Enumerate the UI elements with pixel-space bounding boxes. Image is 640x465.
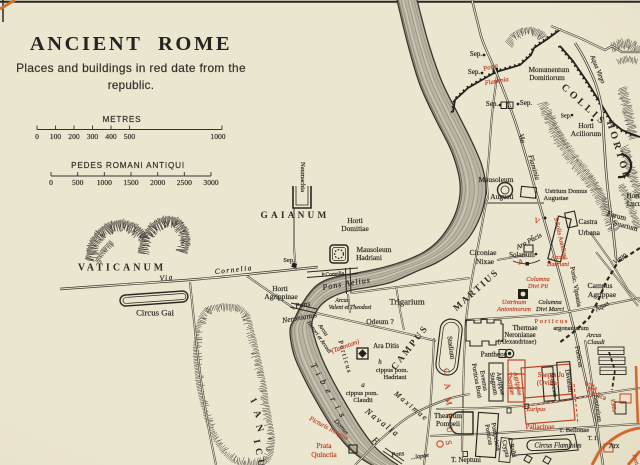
svg-text:h: h <box>378 358 382 366</box>
svg-text:Campus: Campus <box>588 281 613 290</box>
svg-text:2500: 2500 <box>177 178 192 187</box>
svg-text:1000: 1000 <box>97 178 112 187</box>
svg-text:Prata: Prata <box>316 441 332 450</box>
svg-text:Divi Marci: Divi Marci <box>535 306 564 313</box>
svg-text:Arcus: Arcus <box>334 298 349 304</box>
svg-text:Urbana: Urbana <box>578 228 600 237</box>
svg-text:Thermae: Thermae <box>513 324 538 332</box>
svg-text:Arx: Arx <box>609 443 620 450</box>
svg-text:Columna: Columna <box>538 299 561 306</box>
svg-text:400: 400 <box>105 132 117 141</box>
svg-text:3000: 3000 <box>203 178 218 187</box>
svg-text:Sep.: Sep. <box>520 99 533 107</box>
svg-text:Domitiorum: Domitiorum <box>529 74 565 82</box>
svg-text:cippus pom.: cippus pom. <box>376 367 409 374</box>
svg-text:Sep.: Sep. <box>561 113 572 120</box>
svg-text:Circus Gai: Circus Gai <box>136 308 174 318</box>
svg-text:100: 100 <box>50 132 62 141</box>
svg-text:Pompeii: Pompeii <box>436 420 460 428</box>
svg-text:200: 200 <box>68 132 80 141</box>
svg-text:Lucu: Lucu <box>627 200 640 208</box>
svg-text:METRES: METRES <box>103 115 142 124</box>
svg-text:Horti: Horti <box>627 192 640 200</box>
svg-text:Claudii: Claudii <box>353 397 373 404</box>
svg-text:Sep.: Sep. <box>470 50 483 58</box>
svg-text:VATICANUM: VATICANUM <box>78 263 166 274</box>
svg-text:Theatrum: Theatrum <box>434 412 462 420</box>
svg-text:U: U <box>255 458 267 465</box>
svg-text:1500: 1500 <box>123 178 138 187</box>
svg-text:Domitiae: Domitiae <box>341 224 369 233</box>
svg-text:T. Bellonae: T. Bellonae <box>559 427 589 434</box>
svg-text:Places and buildings in red da: Places and buildings in red date from th… <box>16 61 246 75</box>
svg-text:Aciliorum: Aciliorum <box>571 129 602 138</box>
svg-text:Antoninorum: Antoninorum <box>496 306 531 313</box>
svg-text:2000: 2000 <box>150 178 165 187</box>
svg-text:T. I: T. I <box>588 435 597 442</box>
svg-text:Valent et Theodosi: Valent et Theodosi <box>329 305 372 311</box>
svg-text:T. Neptuni: T. Neptuni <box>451 456 481 464</box>
svg-text:Pallacinae: Pallacinae <box>526 423 555 431</box>
svg-text:Hadriani: Hadriani <box>546 262 569 268</box>
svg-text:Sep.: Sep. <box>486 100 499 108</box>
svg-text:Trigarium: Trigarium <box>389 297 425 307</box>
svg-text:argonautarum: argonautarum <box>553 325 588 332</box>
svg-text:Monumentum: Monumentum <box>529 66 570 74</box>
svg-text:Augustae: Augustae <box>544 195 569 202</box>
svg-text:Augusti: Augusti <box>490 192 513 201</box>
svg-text:Ara Ditis: Ara Ditis <box>373 342 399 350</box>
svg-text:Sep.: Sep. <box>283 257 295 264</box>
svg-text:cippus pom.: cippus pom. <box>346 390 379 397</box>
svg-text:Sep.: Sep. <box>468 68 481 76</box>
svg-text:0: 0 <box>35 132 39 141</box>
svg-text:Nixae: Nixae <box>476 257 495 266</box>
svg-text:Ciconiae: Ciconiae <box>470 248 498 257</box>
svg-text:Hadriani: Hadriani <box>356 253 382 262</box>
svg-text:Circus Flaminius: Circus Flaminius <box>534 443 581 450</box>
svg-text:Euripus: Euripus <box>525 407 546 413</box>
svg-text:1000: 1000 <box>210 132 225 141</box>
svg-text:Claudi: Claudi <box>587 339 605 346</box>
svg-text:Columna: Columna <box>526 276 549 283</box>
svg-text:P o r t i c u s: P o r t i c u s <box>535 318 568 325</box>
svg-text:ANCIENT ROME: ANCIENT ROME <box>30 33 232 55</box>
svg-text:Naumachia: Naumachia <box>299 162 306 192</box>
svg-text:Ustrium Domus: Ustrium Domus <box>545 188 588 195</box>
svg-text:Divi Pii: Divi Pii <box>527 283 548 290</box>
svg-text:GAIANUM: GAIANUM <box>261 211 330 221</box>
svg-text:Agrippinae: Agrippinae <box>264 292 298 301</box>
svg-text:Hadriani: Hadriani <box>383 374 406 381</box>
svg-text:Mausoleum: Mausoleum <box>479 175 514 184</box>
svg-text:republic.: republic. <box>108 79 155 92</box>
svg-text:Via: Via <box>159 272 174 282</box>
svg-text:(Alexandrinae): (Alexandrinae) <box>498 339 537 346</box>
svg-text:500: 500 <box>124 132 136 141</box>
svg-text:a: a <box>361 381 365 389</box>
svg-text:Castra: Castra <box>579 217 599 226</box>
svg-text:Pantheon: Pantheon <box>481 351 508 359</box>
svg-text:Arcus: Arcus <box>586 332 602 339</box>
svg-text:Agrippae: Agrippae <box>588 290 617 299</box>
svg-text:0: 0 <box>49 178 53 187</box>
svg-text:Odeum ?: Odeum ? <box>366 317 394 326</box>
svg-text:500: 500 <box>72 178 84 187</box>
svg-text:Quinctia: Quinctia <box>311 450 337 459</box>
svg-text:300: 300 <box>87 132 99 141</box>
svg-text:Ustrinum: Ustrinum <box>502 299 527 306</box>
svg-text:PEDES ROMANI ANTIQUI: PEDES ROMANI ANTIQUI <box>71 161 185 170</box>
